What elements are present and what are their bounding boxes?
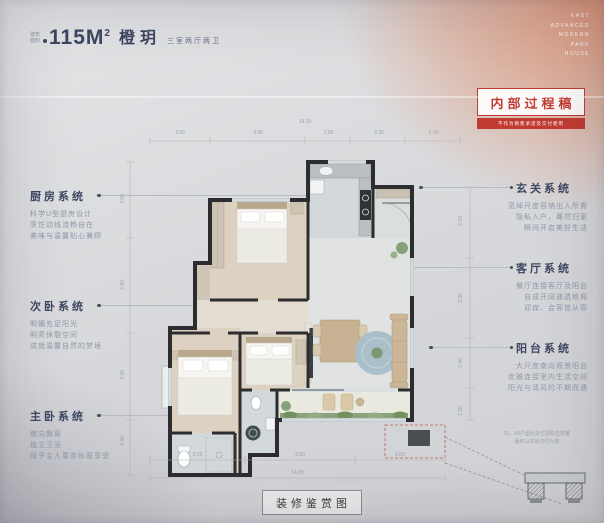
brand-line: PARK xyxy=(551,41,590,51)
dim-label: 2.70 xyxy=(407,130,460,136)
annotation-title: 玄关系统 xyxy=(476,180,588,196)
brand-line: MODERN xyxy=(551,31,590,41)
dim-top-total: 14.15 xyxy=(150,119,460,125)
bullet-dot-icon xyxy=(43,39,47,43)
footer-caption: 装修鉴赏图 xyxy=(262,490,362,515)
dim-label: 1.50 xyxy=(306,130,351,136)
dim-right-label: 1.20 xyxy=(456,408,466,414)
annotation-title: 阳台系统 xyxy=(476,340,588,356)
detail-note: 01、04户型此处空调机位布置 最终以实际交付为准 xyxy=(486,430,588,446)
annotation-entrance: 玄关系统 宽绰尺度容纳出入所需 隐私入户，蓦然归家 瞬间开启美好生活 xyxy=(476,180,588,234)
dim-bottom-row: 3.05 3.90 2.60 xyxy=(150,452,445,458)
layout-description: 三室两厅两卫 xyxy=(167,36,221,46)
dim-label: 2.60 xyxy=(355,452,445,458)
desc-line: 自成开阔通透格局 xyxy=(476,292,588,303)
area-prefix: 建筑 面积 xyxy=(30,32,40,44)
desc-line: 瞬间开启美好生活 xyxy=(476,223,588,234)
desc-line: 宽绰尺度容纳出入所需 xyxy=(476,201,588,212)
annotation-desc: 餐厅连接客厅及阳台 自成开阔通透格局 迎宾、会客皆从容 xyxy=(476,281,588,314)
brand-line: HOUSE xyxy=(551,50,590,60)
dim-label: 3.05 xyxy=(150,452,245,458)
dim-left-label: 3.30 xyxy=(118,372,128,378)
floorplan-drawing xyxy=(120,128,480,488)
dim-left-label: 2.40 xyxy=(118,438,128,444)
annotation-title: 客厅系统 xyxy=(476,260,588,276)
project-name: 橙玥 xyxy=(119,30,161,48)
area-sup: 2 xyxy=(104,28,111,39)
brand-line: EAST xyxy=(551,12,590,22)
internal-draft-stamp: 内部过程稿 不作为销售承诺及交付使用 xyxy=(477,88,585,129)
annotation-living-room: 客厅系统 餐厅连接客厅及阳台 自成开阔通透格局 迎宾、会客皆从容 xyxy=(476,260,588,314)
dim-label: 3.30 xyxy=(351,130,406,136)
dim-label: 3.90 xyxy=(245,452,355,458)
annotation-desc: 宽绰尺度容纳出入所需 隐私入户，蓦然归家 瞬间开启美好生活 xyxy=(476,201,588,234)
dim-label: 3.60 xyxy=(210,130,306,136)
floorplan-poster: { "header": { "area_prefix_line1": "建筑",… xyxy=(0,0,604,523)
dim-bottom-total: 14.15 xyxy=(150,470,445,476)
dim-top-row: 3.05 3.60 1.50 3.30 2.70 xyxy=(150,130,460,136)
detail-note-line: 01、04户型此处空调机位布置 xyxy=(486,430,588,438)
detail-note-line: 最终以实际交付为准 xyxy=(486,438,588,446)
header: 建筑 面积 115M2 橙玥 三室两厅两卫 xyxy=(30,24,221,48)
dim-left-label: 2.90 xyxy=(118,282,128,288)
dim-label: 3.05 xyxy=(150,130,210,136)
stamp-title: 内部过程稿 xyxy=(477,88,585,116)
desc-line: 大尺度南向观景阳台 xyxy=(476,361,588,372)
desc-line: 餐厅连接客厅及阳台 xyxy=(476,281,588,292)
brand-line: ADVANCED xyxy=(551,22,590,32)
area-value: 115M2 xyxy=(49,24,111,48)
desc-line: 隐私入户，蓦然归家 xyxy=(476,212,588,223)
dim-right-label: 2.40 xyxy=(456,360,466,366)
annotation-desc: 大尺度南向观景阳台 优雅连接室内生活空间 阳光与清风的不期而遇 xyxy=(476,361,588,394)
stamp-disclaimer: 不作为销售承诺及交付使用 xyxy=(477,118,585,129)
corner-brand-text: EAST ADVANCED MODERN PARK HOUSE xyxy=(551,12,590,60)
dim-right-label: 2.60 xyxy=(456,218,466,224)
dim-left-label: 3.00 xyxy=(118,196,128,202)
desc-line: 优雅连接室内生活空间 xyxy=(476,372,588,383)
desc-line: 迎宾、会客皆从容 xyxy=(476,303,588,314)
annotation-balcony: 阳台系统 大尺度南向观景阳台 优雅连接室内生活空间 阳光与清风的不期而遇 xyxy=(476,340,588,394)
dim-right-label: 3.30 xyxy=(456,295,466,301)
desc-line: 阳光与清风的不期而遇 xyxy=(476,383,588,394)
area-prefix-line2: 面积 xyxy=(30,38,40,44)
